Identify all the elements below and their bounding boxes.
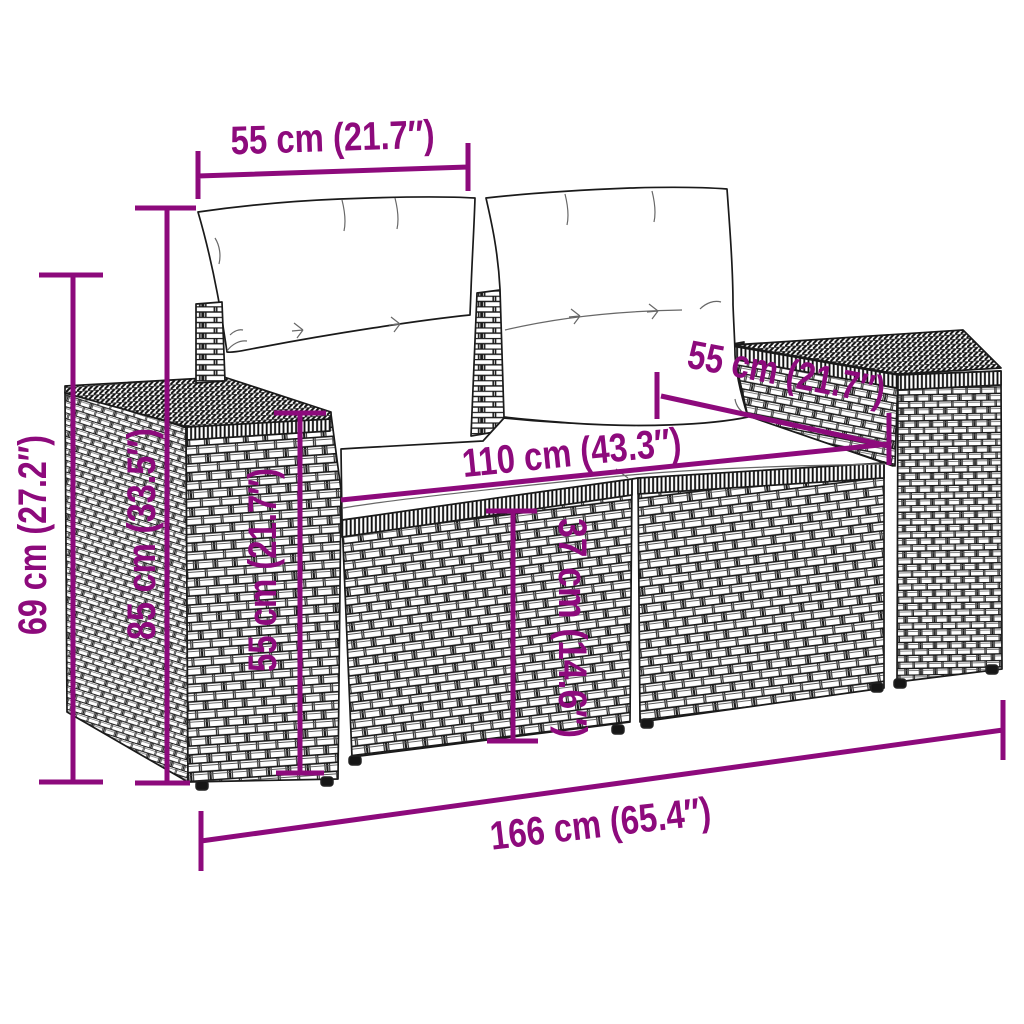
svg-text:85 cm (33.5″): 85 cm (33.5″) (120, 428, 164, 640)
svg-text:55 cm (21.7″): 55 cm (21.7″) (241, 468, 285, 672)
svg-text:55 cm (21.7″): 55 cm (21.7″) (230, 113, 435, 164)
svg-text:69 cm (27.2″): 69 cm (27.2″) (11, 435, 55, 635)
svg-text:37 cm (14.6″): 37 cm (14.6″) (550, 518, 594, 738)
